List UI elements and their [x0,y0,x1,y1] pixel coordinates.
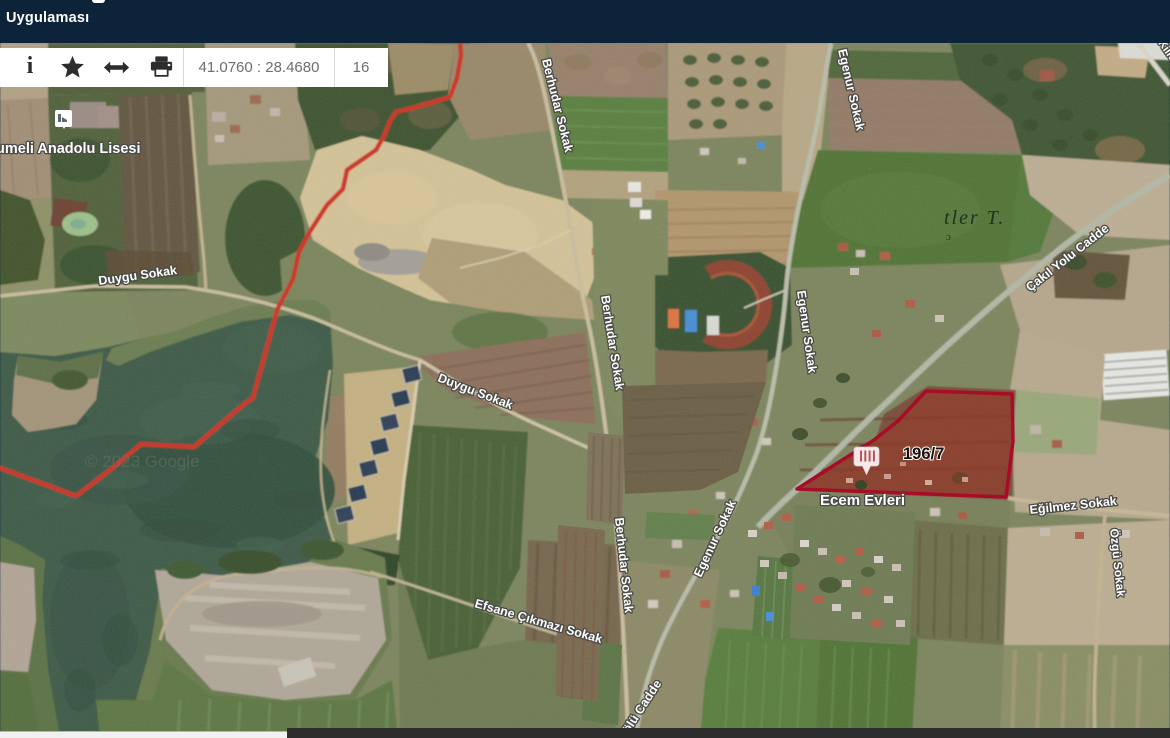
svg-text:umeli Anadolu Lisesi: umeli Anadolu Lisesi [0,141,141,157]
svg-text:© 2023 Google: © 2023 Google [85,452,200,471]
svg-text:Ecem Evleri: Ecem Evleri [820,492,905,509]
svg-text:tler T.: tler T. [944,207,1005,229]
svg-text:ɔ: ɔ [946,231,951,243]
svg-text:196/7: 196/7 [903,445,944,463]
